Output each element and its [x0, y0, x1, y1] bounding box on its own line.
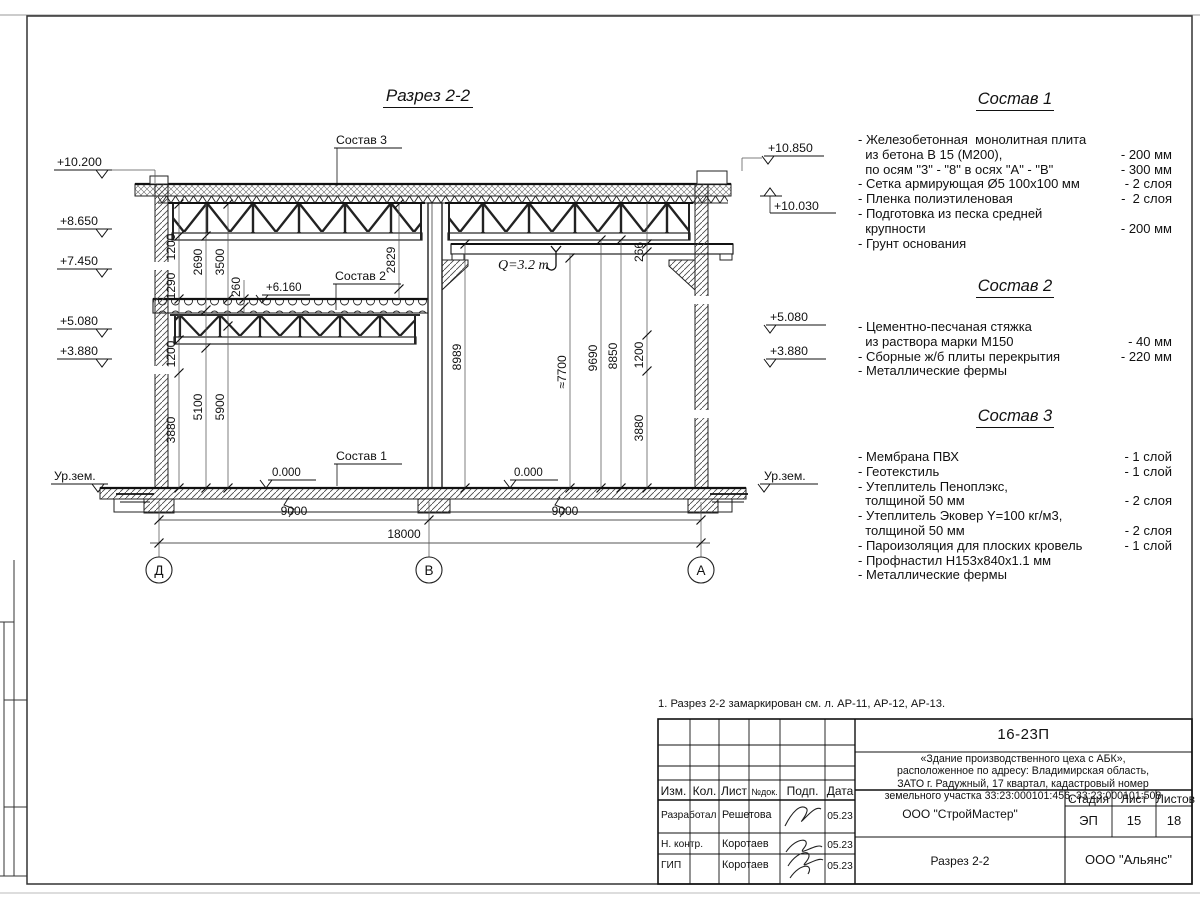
- signatures: [785, 807, 823, 878]
- crane-beam: [442, 244, 733, 290]
- elevation-left-3: +7.450: [60, 254, 98, 268]
- titleblock-doc-number: 16-23П: [855, 726, 1192, 743]
- sostav-2-title: Состав 2: [858, 277, 1172, 298]
- level-zero-right: 0.000: [514, 467, 543, 479]
- note-text: 1. Разрез 2-2 замаркирован см. л. АР-11,…: [658, 698, 945, 710]
- dim-lb-5900: 5900: [213, 393, 227, 420]
- sostav-item: крупности - 200 мм: [858, 222, 1172, 237]
- axis-label-v: В: [424, 563, 433, 578]
- sostav-item: - Сборные ж/б плиты перекрытия - 220 мм: [858, 350, 1172, 365]
- corbel-left: [442, 260, 468, 290]
- signature-reshetova: [785, 807, 821, 826]
- elevation-right-1: +10.850: [768, 141, 813, 155]
- titleblock-date-ncontr: 05.23: [825, 840, 855, 851]
- elevation-left-2: +8.650: [60, 214, 98, 228]
- sostav1-ref-label: Состав 1: [336, 449, 387, 463]
- sostav-1-block: Состав 1 - Железобетонная монолитная пли…: [858, 90, 1172, 251]
- titleblock-col-data: Дата: [825, 784, 855, 798]
- mezzanine-floor: [153, 299, 429, 344]
- sostav-item: - Пароизоляция для плоских кровель - 1 с…: [858, 539, 1172, 554]
- signature-korotaev: [786, 840, 823, 878]
- parapet-right: [697, 171, 727, 184]
- dim-lb-5100: 5100: [191, 393, 205, 420]
- column-center: [428, 203, 442, 488]
- dim-lt-2829: 2829: [384, 246, 398, 273]
- titleblock-col-podp: Подп.: [780, 784, 825, 798]
- building-section: [100, 171, 748, 517]
- sostav2-ref-label: Состав 2: [335, 269, 386, 283]
- titleblock-sheets-label: Листов: [1156, 792, 1192, 806]
- ground-level-right: Ур.зем.: [764, 469, 806, 483]
- sostav3-ref-label: Состав 3: [336, 133, 387, 147]
- page-title: Разрез 2-2: [358, 86, 498, 108]
- level-mezzanine: +6.160: [266, 282, 302, 294]
- sostav-item: - Железобетонная монолитная плита: [858, 133, 1172, 148]
- titleblock-name-ncontr: Коротаев: [722, 838, 769, 850]
- titleblock-date-developer: 05.23: [825, 811, 855, 822]
- titleblock-org-design: ООО "СтройМастер": [855, 807, 1065, 821]
- elevation-left-5: +3.880: [60, 344, 98, 358]
- dim-span-right: 9000: [552, 504, 579, 518]
- sostav-item: - Геотекстиль - 1 слой: [858, 465, 1172, 480]
- titleblock-name-developer: Решетова: [722, 809, 772, 821]
- axis-bubbles: Д В А: [146, 557, 714, 583]
- sostav-item: - Профнастил Н153х840х1.1 мм: [858, 554, 1172, 569]
- sostav-item: - Пленка полиэтиленовая - 2 слоя: [858, 192, 1172, 207]
- dim-span-left: 9000: [281, 504, 308, 518]
- dim-lb-3880: 3880: [164, 416, 178, 443]
- dim-r-266: 266: [632, 242, 646, 262]
- dim-lt-3500: 3500: [213, 248, 227, 275]
- titleblock-role-gip: ГИП: [661, 860, 681, 871]
- roof-truss-left: [168, 203, 425, 240]
- titleblock-sheet-value: 15: [1112, 813, 1156, 828]
- level-zero-left: 0.000: [272, 467, 301, 479]
- sostav-item: - Металлические фермы: [858, 568, 1172, 583]
- titleblock-col-list: Лист: [719, 784, 749, 798]
- sostav-2-block: Состав 2 - Цементно-песчаная стяжка из р…: [858, 277, 1172, 379]
- sostav-item: по осям "3" - "8" в осях "А" - "В" - 300…: [858, 163, 1172, 178]
- parapet-left: [150, 176, 168, 184]
- sostav-item: - Утеплитель Пеноплэкс,: [858, 480, 1172, 495]
- titleblock-sheets-value: 18: [1156, 813, 1192, 828]
- sostav-item: - Металлические фермы: [858, 364, 1172, 379]
- sostav-3-items: - Мембрана ПВХ - 1 слой - Геотекстиль - …: [858, 450, 1172, 583]
- drawing-sheet: Д В А +10.200 +8.650 +7.450 +5.080 +3.88…: [0, 0, 1200, 900]
- titleblock-stage-value: ЭП: [1065, 813, 1112, 828]
- dim-lt-1290: 1290: [164, 272, 178, 299]
- titleblock-col-kol: Кол.: [690, 784, 719, 798]
- sostav-item: толщиной 50 мм - 2 слоя: [858, 494, 1172, 509]
- titleblock-role-ncontr: Н. контр.: [661, 839, 703, 850]
- sostav-item: - Мембрана ПВХ - 1 слой: [858, 450, 1172, 465]
- dim-lt-1200: 1200: [164, 233, 178, 260]
- dim-total: 18000: [387, 527, 421, 541]
- elevation-right-4: +3.880: [770, 344, 808, 358]
- sostav-item: - Грунт основания: [858, 237, 1172, 252]
- titleblock-org-customer: ООО "Альянс": [1065, 852, 1192, 867]
- titleblock-sheet-label: Лист: [1112, 792, 1156, 806]
- sostav-item: толщиной 50 мм - 2 слоя: [858, 524, 1172, 539]
- sostav-item: - Подготовка из песка средней: [858, 207, 1172, 222]
- dim-lt-2690: 2690: [191, 248, 205, 275]
- titleblock-stage-label: Стадия: [1065, 792, 1112, 806]
- axis-label-a: А: [696, 563, 705, 578]
- sostav-1-title: Состав 1: [858, 90, 1172, 111]
- dim-lb-1200: 1200: [164, 340, 178, 367]
- elevation-left-1: +10.200: [57, 155, 102, 169]
- dim-r-7700: ≈7700: [555, 355, 569, 389]
- titleblock-drawing-name: Разрез 2-2: [855, 854, 1065, 868]
- titleblock-date-gip: 05.23: [825, 861, 855, 872]
- sostav-3-block: Состав 3 - Мембрана ПВХ - 1 слой - Геоте…: [858, 407, 1172, 583]
- crane-capacity-label: Q=3.2 т: [498, 258, 549, 273]
- dim-r-1200: 1200: [632, 341, 646, 368]
- titleblock-name-gip: Коротаев: [722, 859, 769, 871]
- sostav-item: из бетона В 15 (М200), - 200 мм: [858, 148, 1172, 163]
- sostav-2-items: - Цементно-песчаная стяжка из раствора м…: [858, 320, 1172, 379]
- titleblock-role-developer: Разработал: [661, 810, 716, 821]
- dim-r-8850: 8850: [606, 342, 620, 369]
- roof-truss-right: [445, 203, 693, 240]
- left-margin-table: [0, 560, 27, 876]
- elevation-left-4: +5.080: [60, 314, 98, 328]
- corbel-right: [669, 260, 695, 290]
- roof-deck: [158, 196, 728, 203]
- dim-r-3880: 3880: [632, 414, 646, 441]
- elevation-right-2: +10.030: [774, 199, 819, 213]
- roof-slab: [135, 184, 731, 196]
- elevation-right-3: +5.080: [770, 310, 808, 324]
- axis-label-d: Д: [154, 563, 163, 578]
- sostav-item: из раствора марки М150 - 40 мм: [858, 335, 1172, 350]
- sostav-item: - Утеплитель Эковер Y=100 кг/м3,: [858, 509, 1172, 524]
- ground-level-left: Ур.зем.: [54, 469, 96, 483]
- sostav-item: - Сетка армирующая Ø5 100х100 мм - 2 сло…: [858, 177, 1172, 192]
- dim-r-8989: 8989: [450, 343, 464, 370]
- sostav-item: - Цементно-песчаная стяжка: [858, 320, 1172, 335]
- dim-r-9690: 9690: [586, 344, 600, 371]
- titleblock-col-izm: Изм.: [657, 784, 690, 798]
- dim-lt-260: 260: [229, 277, 243, 297]
- wall-right: [694, 184, 709, 488]
- sostav-3-title: Состав 3: [858, 407, 1172, 428]
- sostav-1-items: - Железобетонная монолитная плита из бет…: [858, 133, 1172, 251]
- titleblock-col-ndoc: №док.: [749, 787, 780, 797]
